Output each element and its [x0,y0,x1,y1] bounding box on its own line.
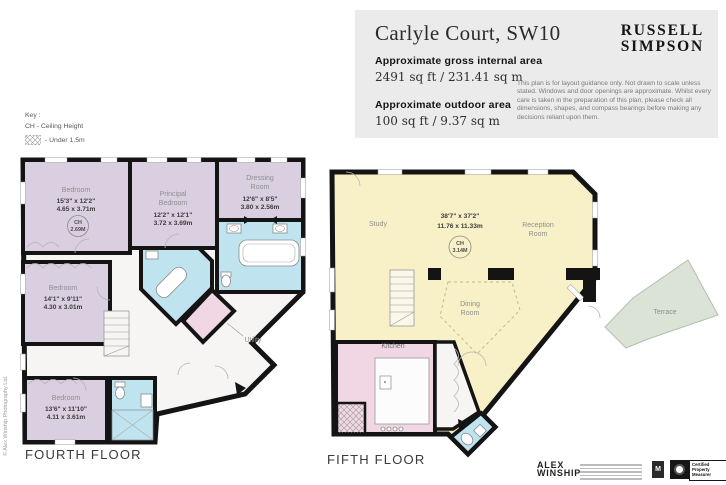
openplan-ch-value: 3.14M [453,248,468,254]
fifth-floor-plan: Terrace [320,158,724,470]
footer-fine-print [580,464,642,482]
aw-line2: WINSHIP [537,469,581,477]
photographer-credit: © Alex Winship Photography Ltd. [3,376,9,457]
dining-label2: Room [461,310,480,317]
bedroom3-dims-m: 4.11 x 3.61m [47,414,86,421]
dining-label1: Dining [460,301,480,308]
principal-label2: Bedroom [159,200,188,207]
bedroom3-label: Bedroom [52,395,81,402]
bedroom1-dims-ft: 15'3" x 12'2" [57,198,96,205]
kitchen-label: Kitchen [381,343,404,350]
bedroom1-dims-m: 4.65 x 3.71m [57,206,96,213]
bedroom2-dims-ft: 14'1" x 9'11" [44,296,82,303]
reception-label1: Reception [522,222,554,229]
principal-dims-ft: 12'2" x 12'1" [154,212,193,219]
openplan-dims-m: 11.76 x 11.33m [437,223,483,230]
key-ceiling-height: CH - Ceiling Height [25,123,85,130]
fifth-floor-stairs [390,270,414,326]
rics-logo-icon [670,460,689,479]
fourth-floor-title: FOURTH FLOOR [25,447,142,462]
gross-area-value: 2491 sq ft / 231.41 sq m [375,70,523,84]
bedroom2-dims-m: 4.30 x 3.01m [44,304,83,311]
bedroom1-ch: CH [74,220,82,226]
openplan-ch: CH [456,241,464,247]
terrace-label: Terrace [653,309,676,316]
fifth-floor-title: FIFTH FLOOR [327,452,425,467]
outdoor-area-label: Approximate outdoor area [375,99,511,111]
russell-simpson-logo: RUSSELL SIMPSON [621,23,704,55]
dressing-dims-ft: 12'6" x 8'5" [242,196,277,203]
kitchen-fixtures [375,358,429,431]
certified-badge-text: Certified Property Measurer [689,460,726,481]
key-under-label: - Under 1.5m [45,137,85,144]
under-height-hatch-icon [25,135,41,145]
study-label: Study [369,221,387,228]
utility-label: Utility [244,337,262,344]
brand-line2: SIMPSON [621,39,704,55]
bedroom2-label: Bedroom [49,285,78,292]
dressing-label1: Dressing [246,175,274,182]
plan-disclaimer: This plan is for layout guidance only. N… [517,80,715,122]
certified-property-badge: Certified Property Measurer [670,460,726,479]
floorplan-page: Carlyle Court, SW10 Approximate gross in… [0,0,726,485]
measurer-mark-icon: M [652,461,664,478]
gross-area-label: Approximate gross internal area [375,55,542,67]
fourth-floor-stairs [104,311,129,356]
bedroom1-ch-value: 2.69M [71,227,86,233]
property-title: Carlyle Court, SW10 [375,21,561,46]
bedroom1-label: Bedroom [62,187,91,194]
fourth-floor-plan: Bedroom 15'3" x 12'2" 4.65 x 3.71m CH 2.… [15,148,320,450]
bedroom2-room [23,262,110,344]
under-height-area [337,403,365,434]
plan-key: Key : CH - Ceiling Height - Under 1.5m [25,112,85,145]
principal-dims-m: 3.72 x 3.69m [154,220,193,227]
terrace-area [605,260,718,348]
principal-label1: Principal [160,191,187,198]
reception-label2: Room [529,231,548,238]
key-title: Key : [25,112,85,119]
bedroom3-dims-ft: 13'6" x 11'10" [45,406,87,413]
alex-winship-logo: ALEX WINSHIP [537,461,581,477]
dressing-dims-m: 3.80 x 2.56m [241,204,280,211]
outdoor-area-value: 100 sq ft / 9.37 sq m [375,114,500,128]
brand-line1: RUSSELL [621,23,704,39]
dressing-label2: Room [251,184,270,191]
header-panel: Carlyle Court, SW10 Approximate gross in… [355,10,718,138]
openplan-dims-ft: 38'7" x 37'2" [441,213,480,220]
